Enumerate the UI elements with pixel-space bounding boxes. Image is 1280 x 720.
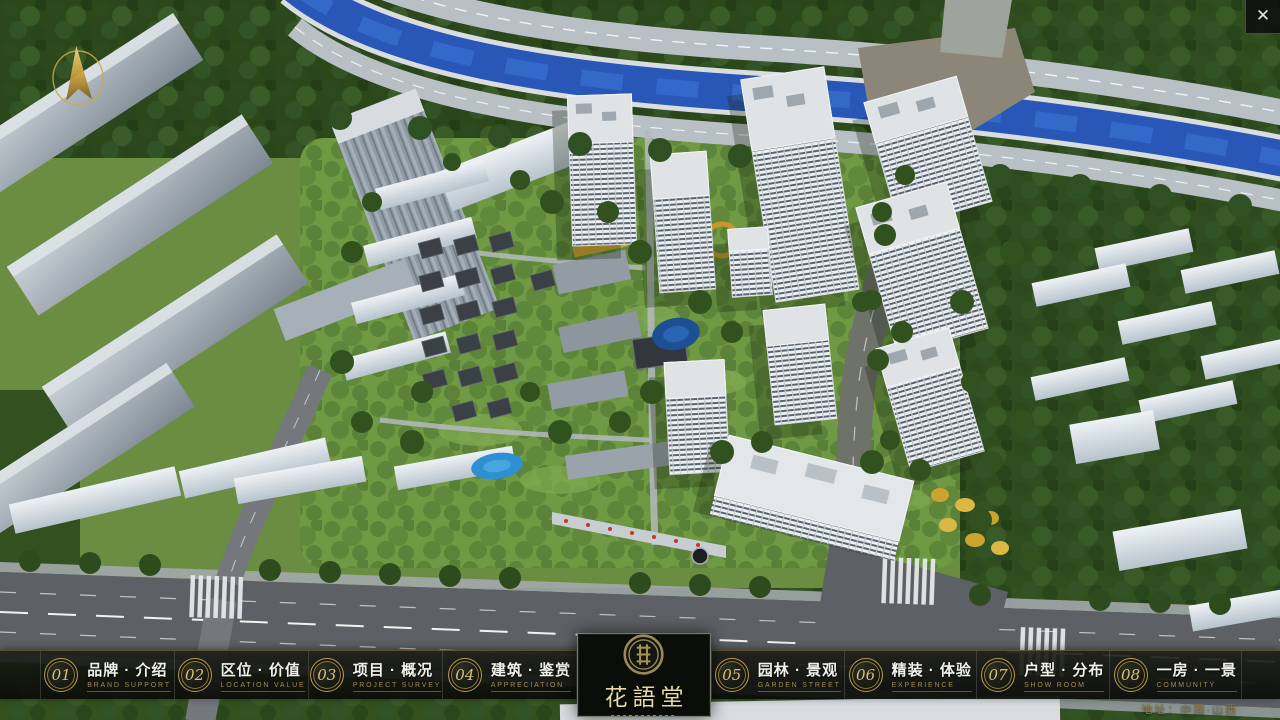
aerial-site-plan[interactable] xyxy=(0,0,1280,720)
brand-logo-panel[interactable]: 花語堂 xyxy=(577,633,711,717)
nav-item-number-badge: 06 xyxy=(849,658,883,692)
nav-item-label-en: PROJECT SURVEY xyxy=(353,682,441,692)
nav-item-room-view[interactable]: 08 一房 · 一景COMMUNITY xyxy=(1110,651,1243,699)
nav-item-number: 03 xyxy=(317,666,336,684)
nav-item-number-badge: 03 xyxy=(310,658,344,692)
nav-item-number-badge: 08 xyxy=(1114,658,1148,692)
nav-item-number: 06 xyxy=(856,666,875,684)
nav-group-left: 01 品牌 · 介绍BRAND SUPPORT 02 区位 · 价值LOCATI… xyxy=(0,651,577,699)
nav-item-floorplan-distribution[interactable]: 07 户型 · 分布SHOW ROOM xyxy=(977,651,1110,699)
nav-item-label-en: BRAND SUPPORT xyxy=(87,682,171,692)
nav-item-label-zh: 建筑 · 鉴赏 xyxy=(491,659,571,680)
brand-subtitle-decor xyxy=(611,715,677,716)
nav-item-number-badge: 07 xyxy=(981,658,1015,692)
nav-item-label-zh: 园林 · 景观 xyxy=(758,659,838,680)
nav-item-interior-experience[interactable]: 06 精装 · 体验EXPERIENCE xyxy=(845,651,978,699)
nav-item-label-zh: 项目 · 概况 xyxy=(353,659,433,680)
close-button[interactable]: ✕ xyxy=(1245,0,1280,34)
nav-item-number: 04 xyxy=(455,666,474,684)
nav-item-location-value[interactable]: 02 区位 · 价值LOCATION VALUE xyxy=(175,651,309,699)
nav-item-number: 05 xyxy=(722,666,741,684)
nav-item-number-badge: 04 xyxy=(448,658,482,692)
entrance-feature xyxy=(692,548,708,564)
nav-item-label-en: GARDEN STREET xyxy=(758,682,841,692)
nav-item-label-zh: 户型 · 分布 xyxy=(1024,659,1104,680)
nav-item-label-en: EXPERIENCE xyxy=(892,682,972,692)
presentation-viewport: ✕ 01 品牌 · 介绍BRAND SUPPORT 02 区位 · 价值LOCA… xyxy=(0,0,1280,720)
nav-item-architecture-appreciation[interactable]: 04 建筑 · 鉴赏APPRECIATION xyxy=(443,651,577,699)
nav-item-label-zh: 一房 · 一景 xyxy=(1157,659,1237,680)
compass-north-icon xyxy=(46,40,110,110)
nav-item-project-overview[interactable]: 03 项目 · 概况PROJECT SURVEY xyxy=(309,651,443,699)
nav-item-number-badge: 01 xyxy=(44,658,78,692)
nav-item-label-en: COMMUNITY xyxy=(1157,682,1237,692)
nav-item-garden-landscape[interactable]: 05 园林 · 景观GARDEN STREET xyxy=(711,651,845,699)
nav-group-right: 05 园林 · 景观GARDEN STREET 06 精装 · 体验EXPERI… xyxy=(711,651,1280,699)
nav-item-number: 02 xyxy=(185,666,204,684)
brand-seal-icon xyxy=(623,634,664,675)
nav-item-label-zh: 区位 · 价值 xyxy=(221,659,301,680)
nav-item-brand-intro[interactable]: 01 品牌 · 介绍BRAND SUPPORT xyxy=(40,651,175,699)
nav-item-label-en: SHOW ROOM xyxy=(1024,682,1104,692)
nav-item-number-badge: 05 xyxy=(715,658,749,692)
nav-item-label-en: LOCATION VALUE xyxy=(221,682,306,692)
nav-item-number: 08 xyxy=(1121,666,1140,684)
nav-item-number: 01 xyxy=(52,666,71,684)
bottom-nav: 01 品牌 · 介绍BRAND SUPPORT 02 区位 · 价值LOCATI… xyxy=(0,650,1280,699)
brand-title: 花語堂 xyxy=(605,678,689,712)
address-text: 地址：中国·山西 xyxy=(1141,701,1238,717)
nav-item-number: 07 xyxy=(989,666,1008,684)
nav-item-label-zh: 品牌 · 介绍 xyxy=(87,659,167,680)
close-icon: ✕ xyxy=(1256,8,1270,25)
nav-item-label-en: APPRECIATION xyxy=(491,682,571,692)
nav-item-label-zh: 精装 · 体验 xyxy=(892,659,972,680)
nav-item-number-badge: 02 xyxy=(178,658,212,692)
